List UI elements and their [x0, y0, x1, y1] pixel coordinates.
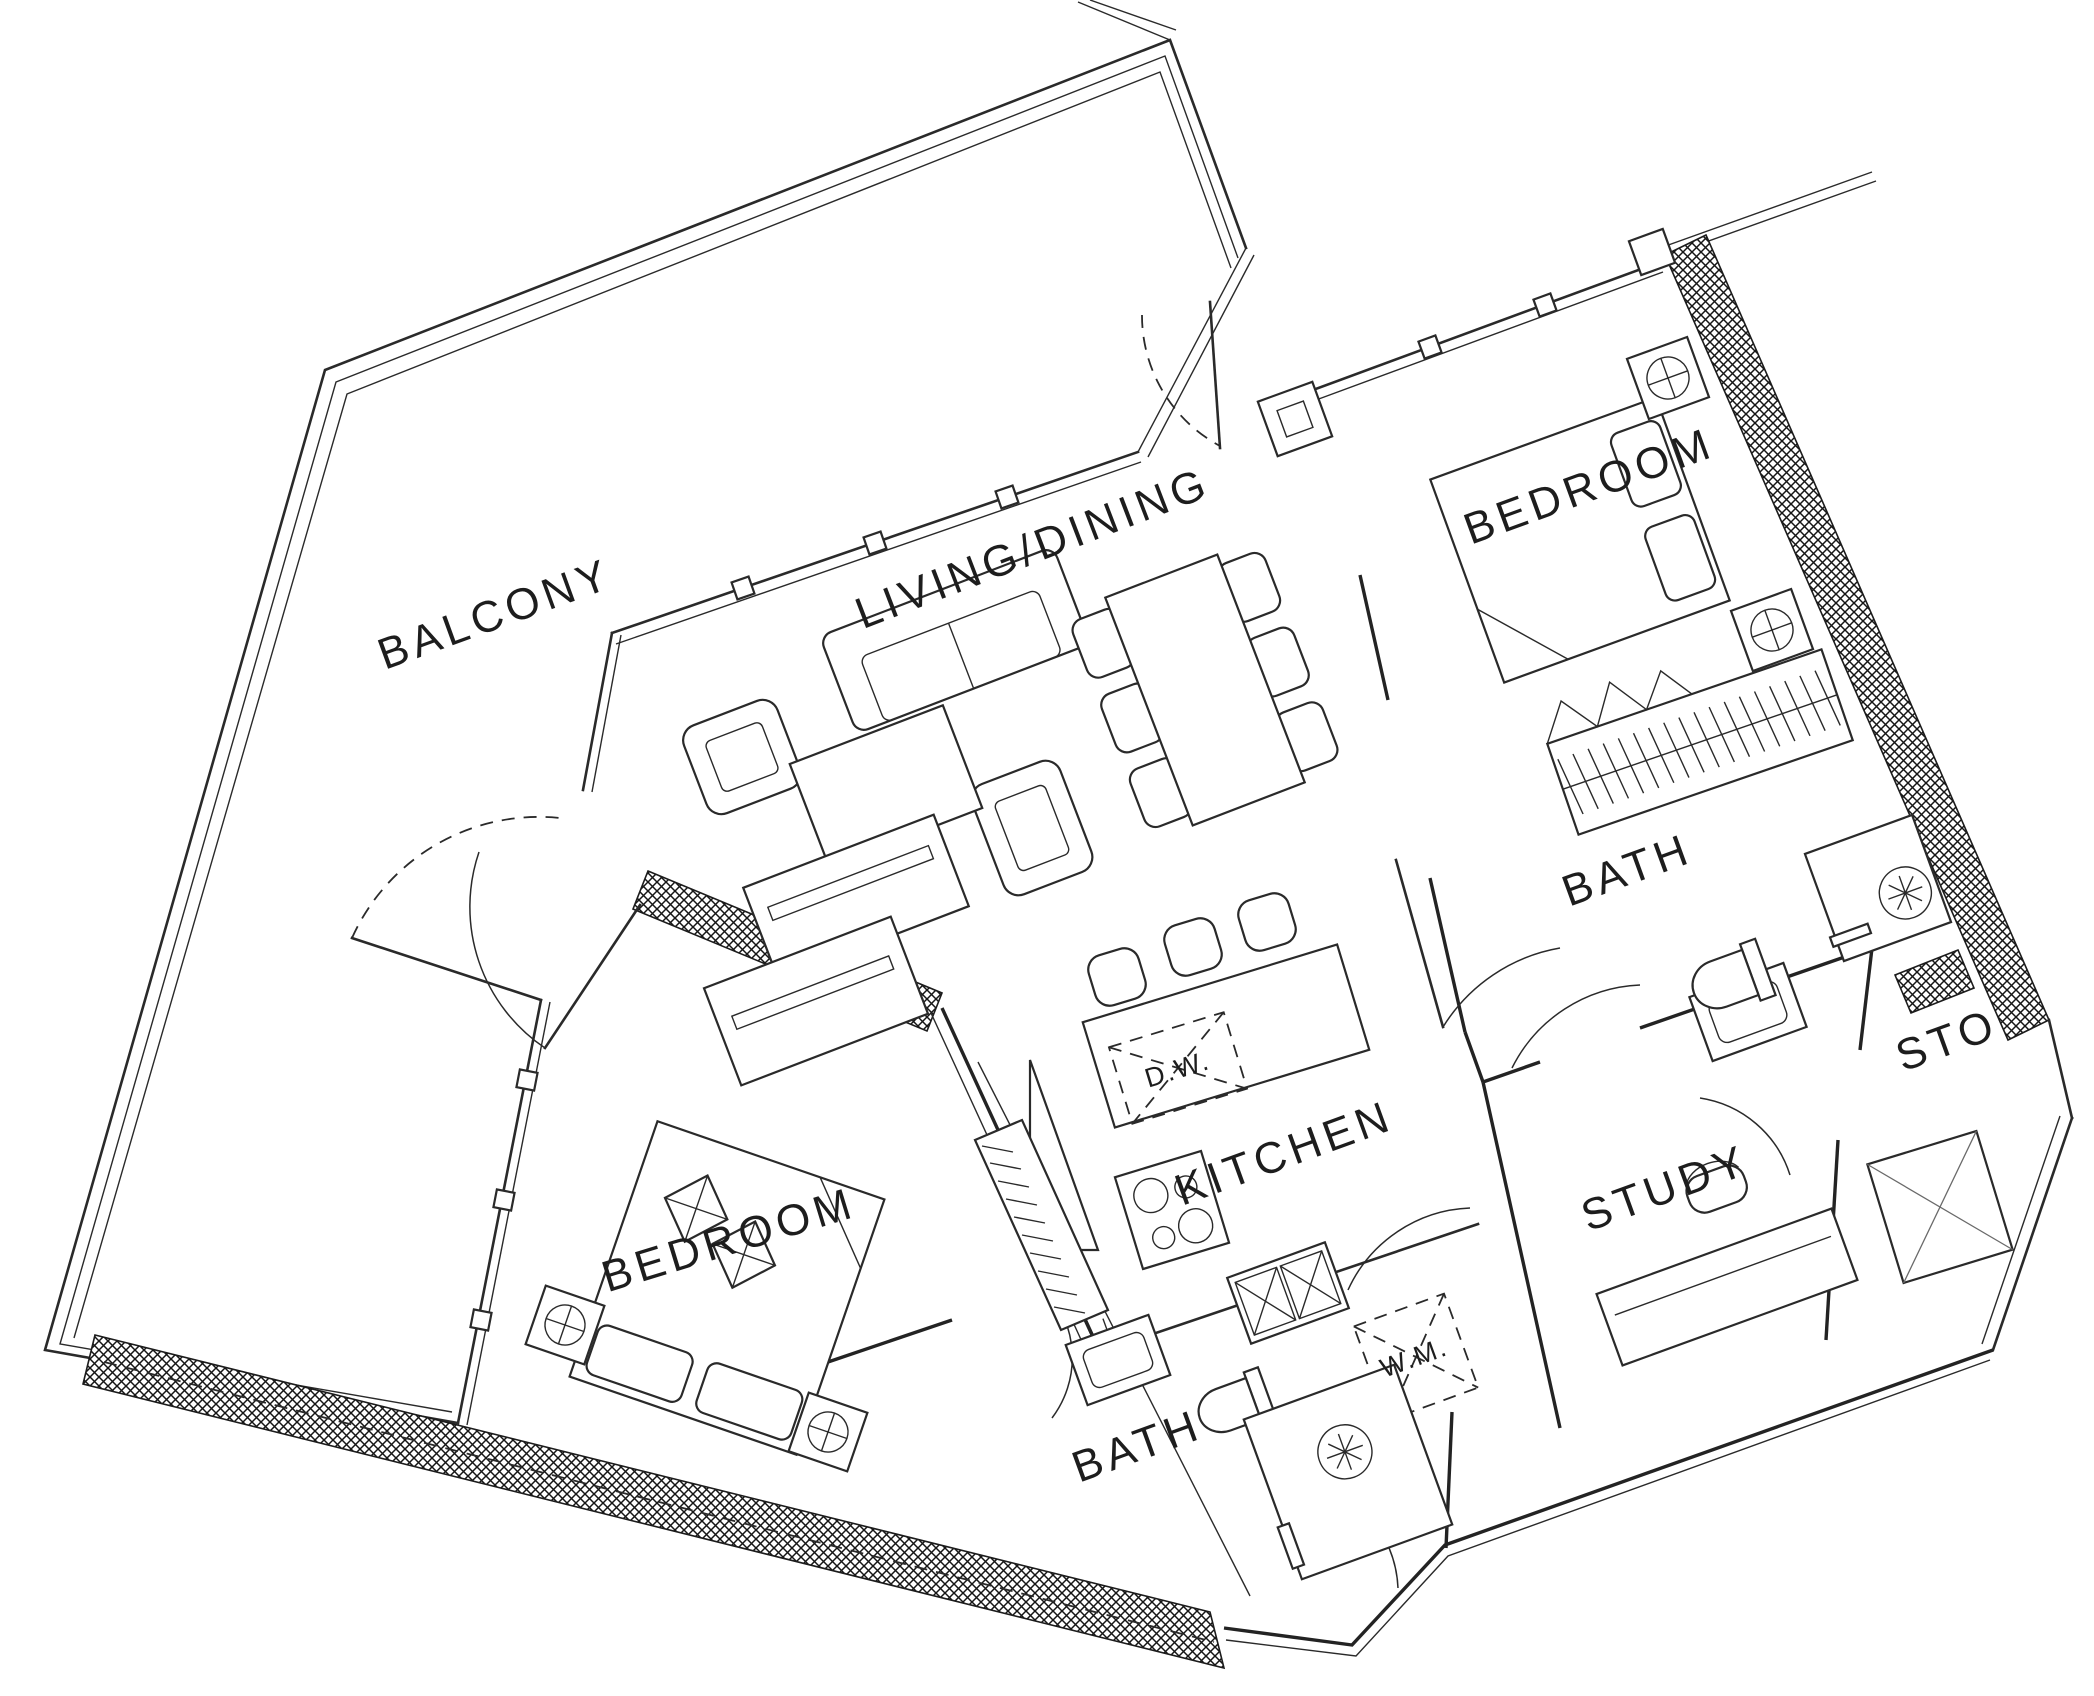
room-label-bath-master: BATH: [1556, 824, 1699, 916]
bar-stool: [1161, 915, 1226, 980]
room-label-kitchen: KITCHEN: [1168, 1091, 1399, 1215]
window-wall-entry: [1313, 229, 1675, 400]
room-label-balcony: BALCONY: [371, 549, 618, 679]
bedroom-master-furniture: [1430, 337, 1852, 835]
room-label-study: STUDY: [1575, 1136, 1755, 1242]
hall-door-arc: [1348, 1208, 1470, 1290]
closet-second: [975, 1060, 1108, 1330]
floor-plan-page: BALCONY LIVING/DINING BEDROOM BATH STO S…: [0, 0, 2094, 1696]
entry-column: [1258, 382, 1332, 456]
armchair: [967, 756, 1097, 900]
shower-second: [1239, 1365, 1452, 1581]
bar-stool: [1235, 890, 1300, 955]
room-label-storage: STO: [1889, 999, 2004, 1081]
hatch-patch-sto: [1895, 950, 1974, 1013]
service-shaft: [1867, 1131, 2012, 1283]
balcony-door: [352, 817, 560, 1000]
bath-master-fixtures: [1684, 815, 1951, 1061]
desk: [1597, 1209, 1858, 1366]
bedroom-master-door: [1396, 860, 1560, 1027]
kitchen-sink: [1227, 1242, 1349, 1343]
dining-set: [1065, 539, 1345, 841]
bar-stool: [1085, 945, 1150, 1010]
room-label-bath-second: BATH: [1066, 1400, 1209, 1492]
armchair: [678, 695, 805, 819]
bedroom-second-door: [470, 852, 640, 1048]
bath-master-door-arc: [1512, 985, 1640, 1068]
sto-east-wall: [1982, 1020, 2072, 1350]
floor-plan-drawing: BALCONY LIVING/DINING BEDROOM BATH STO S…: [0, 0, 2094, 1696]
entry-door: [1142, 302, 1220, 448]
appliance-label-washing-machine: W.M.: [1376, 1332, 1452, 1384]
